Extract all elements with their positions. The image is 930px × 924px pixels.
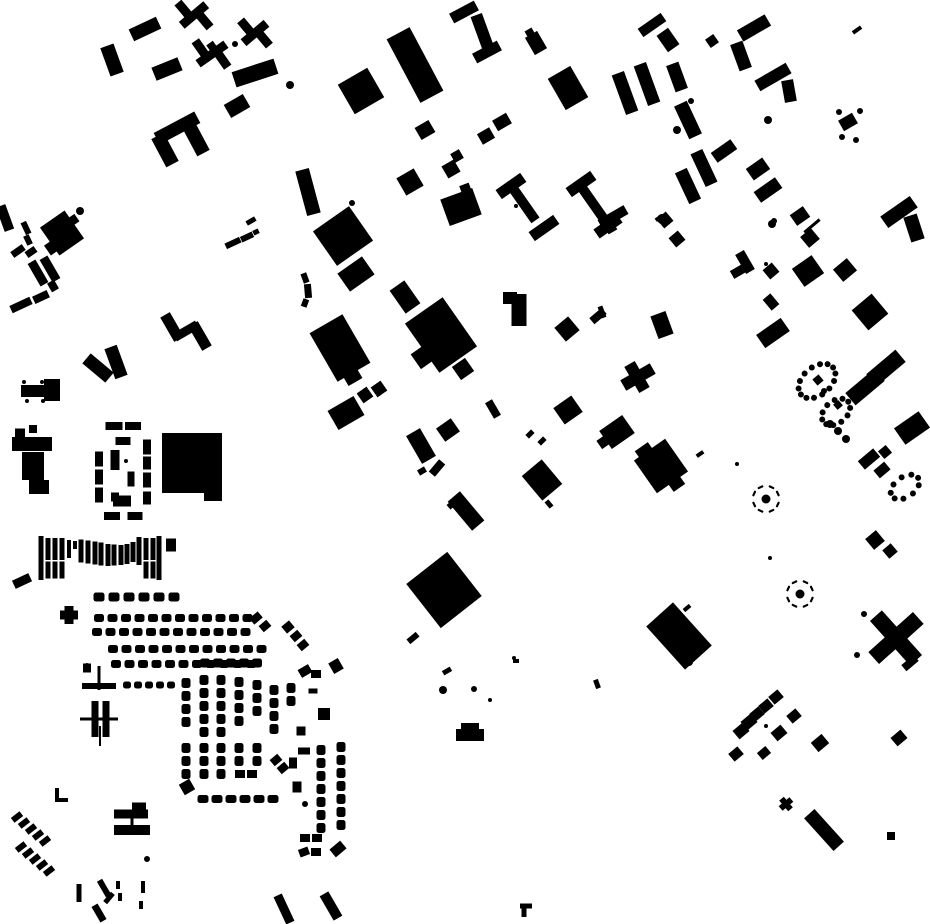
building-footprint	[300, 834, 310, 842]
building-footprint	[47, 280, 59, 293]
building-footprint	[60, 562, 65, 579]
building-footprint	[270, 711, 279, 721]
building-footprint	[160, 628, 170, 636]
building-footprint	[182, 704, 191, 714]
building-footprint	[23, 234, 33, 246]
building-footprint	[106, 544, 111, 566]
building-footprint	[429, 459, 445, 476]
building-footprint	[143, 473, 151, 488]
building-footprint	[22, 452, 44, 480]
building-footprint-dot	[907, 471, 915, 479]
building-footprint	[79, 540, 84, 563]
building-footprint	[11, 811, 23, 823]
building-footprint	[116, 437, 131, 445]
building-footprint	[317, 797, 326, 807]
building-footprint	[46, 538, 51, 560]
building-footprint-dot	[823, 401, 831, 409]
building-footprint	[287, 696, 296, 706]
building-footprint	[156, 682, 164, 689]
building-footprint-dot	[897, 473, 905, 481]
building-footprint	[310, 314, 371, 381]
building-footprint	[235, 770, 245, 778]
building-footprint-dot	[839, 134, 845, 140]
building-footprint	[182, 122, 209, 157]
building-footprint	[65, 606, 74, 624]
building-footprint	[545, 499, 554, 508]
building-footprint	[298, 748, 310, 755]
building-footprint	[786, 585, 791, 591]
building-footprint	[99, 726, 101, 746]
building-footprint	[29, 480, 49, 494]
building-footprint	[104, 512, 120, 520]
building-footprint	[111, 493, 119, 502]
building-footprint	[390, 280, 421, 313]
building-footprint	[436, 418, 460, 441]
building-footprint	[143, 457, 151, 470]
building-footprint-dot	[41, 399, 45, 403]
building-footprint	[139, 901, 143, 909]
building-footprint	[852, 294, 889, 331]
building-footprint	[86, 541, 91, 564]
building-footprint	[175, 614, 185, 622]
building-footprint	[235, 716, 244, 726]
building-footprint-dot	[909, 489, 917, 497]
building-footprint	[328, 658, 344, 674]
building-footprint	[259, 620, 272, 633]
building-footprint	[320, 891, 343, 920]
building-footprint	[182, 678, 191, 688]
building-footprint	[200, 769, 209, 779]
building-footprint	[144, 538, 149, 560]
building-footprint	[151, 133, 178, 168]
building-footprint	[99, 543, 104, 566]
building-footprint	[301, 298, 309, 308]
building-footprint	[29, 425, 37, 433]
map-figure	[0, 0, 930, 924]
building-footprint	[29, 853, 41, 865]
building-footprint	[145, 682, 153, 689]
building-footprint-dot	[514, 204, 518, 208]
building-footprint	[80, 718, 118, 721]
building-footprint	[214, 628, 224, 636]
building-footprint-dot	[843, 411, 851, 419]
radial-marker	[752, 485, 780, 513]
building-footprint	[235, 743, 244, 753]
building-footprint	[317, 810, 326, 820]
building-footprint-dot	[854, 652, 860, 658]
building-footprint	[311, 670, 321, 678]
building-footprint	[217, 756, 226, 766]
building-footprint-dot	[768, 556, 772, 560]
building-footprint	[182, 717, 191, 727]
building-footprint	[212, 795, 223, 803]
building-footprint	[903, 213, 924, 242]
building-footprint	[440, 188, 482, 226]
building-footprint-dot	[688, 98, 694, 104]
radial-marker	[786, 580, 814, 608]
building-footprint	[95, 470, 103, 485]
building-footprint	[318, 708, 330, 720]
building-footprint	[91, 903, 106, 922]
building-footprint	[337, 820, 346, 830]
building-footprint	[141, 881, 145, 893]
building-footprint	[204, 491, 222, 501]
building-footprint	[226, 659, 236, 668]
building-footprint	[298, 847, 310, 858]
building-footprint	[878, 445, 892, 459]
building-footprint	[169, 593, 180, 602]
building-footprint-dot	[834, 427, 842, 435]
building-footprint	[317, 745, 326, 755]
building-footprint	[118, 893, 122, 901]
building-footprint	[165, 660, 175, 668]
building-footprint	[757, 746, 771, 760]
building-footprint	[763, 293, 780, 310]
building-footprint	[811, 734, 829, 752]
building-footprint	[415, 120, 436, 140]
building-footprint	[43, 865, 55, 877]
building-footprint	[768, 485, 774, 490]
building-footprint	[477, 127, 495, 144]
building-footprint	[119, 545, 124, 565]
building-footprint	[328, 396, 365, 430]
building-footprint-dot	[673, 126, 681, 134]
building-footprint	[858, 448, 880, 469]
building-footprint	[281, 620, 294, 633]
building-footprint	[666, 62, 688, 93]
building-footprint	[15, 429, 25, 438]
building-footprint	[254, 795, 265, 803]
building-footprint	[125, 544, 130, 564]
building-footprint	[522, 459, 562, 500]
building-footprint	[133, 628, 143, 636]
building-footprint-dot	[810, 394, 818, 402]
building-footprint	[786, 708, 802, 723]
building-footprint	[36, 859, 48, 871]
building-footprint-dot	[439, 686, 447, 694]
building-footprint	[253, 756, 262, 766]
building-footprint	[241, 628, 251, 636]
building-footprint	[114, 825, 150, 835]
building-footprint	[94, 593, 105, 602]
building-footprint	[24, 246, 37, 258]
building-footprint	[217, 714, 226, 724]
building-footprint	[200, 756, 209, 766]
building-footprint	[252, 228, 260, 235]
building-footprint	[317, 823, 326, 833]
building-footprint	[152, 660, 162, 668]
building-footprint	[337, 742, 346, 752]
building-footprint-dot	[826, 420, 834, 428]
building-footprint-dot	[488, 698, 492, 702]
building-footprint-dot	[349, 200, 355, 206]
building-footprint-map	[0, 0, 930, 924]
building-footprint	[790, 206, 811, 226]
building-footprint	[442, 667, 452, 676]
building-footprint	[804, 809, 844, 851]
building-footprint	[268, 795, 279, 803]
building-footprint	[92, 628, 102, 636]
building-footprint	[12, 573, 32, 589]
building-footprint	[810, 585, 815, 591]
building-footprint	[792, 255, 824, 287]
building-footprint	[192, 38, 211, 60]
building-footprint	[135, 614, 145, 622]
building-footprint	[786, 596, 791, 602]
building-footprint	[791, 604, 797, 609]
building-footprint	[143, 492, 151, 505]
building-footprint-dot	[915, 481, 923, 489]
building-footprint	[812, 374, 823, 385]
building-footprint	[21, 385, 49, 397]
building-footprint	[757, 509, 763, 514]
building-footprint	[577, 184, 607, 221]
building-footprint-dot	[232, 41, 238, 47]
building-footprint	[852, 25, 862, 34]
building-footprint	[134, 682, 142, 689]
building-footprint	[461, 723, 479, 731]
building-footprint	[82, 683, 116, 689]
building-footprint	[151, 57, 182, 80]
building-footprint	[18, 817, 30, 829]
building-footprint	[503, 292, 517, 304]
building-footprint	[838, 113, 858, 131]
building-footprint	[125, 422, 141, 430]
building-footprint	[756, 318, 790, 348]
building-footprint-dot	[816, 360, 824, 368]
building-footprint	[125, 660, 135, 668]
building-footprint	[357, 387, 374, 404]
building-footprint	[108, 614, 118, 622]
building-footprint	[138, 660, 148, 668]
building-footprint-dot	[794, 384, 802, 392]
building-footprint	[167, 682, 175, 689]
building-footprint	[10, 244, 25, 258]
building-footprint	[554, 316, 579, 341]
dotted-building-outline	[883, 466, 928, 508]
building-footprint	[270, 754, 283, 767]
building-footprint	[112, 545, 117, 566]
building-footprint	[757, 485, 763, 490]
building-footprint	[768, 509, 774, 514]
building-footprint	[95, 452, 103, 467]
building-footprint	[270, 698, 279, 708]
building-footprint	[337, 781, 346, 791]
building-footprint-dot	[853, 137, 859, 143]
building-footprint	[737, 14, 771, 41]
building-footprint	[182, 756, 191, 766]
building-footprint	[226, 795, 237, 803]
building-footprint	[0, 204, 14, 232]
building-footprint-dot	[286, 81, 294, 89]
building-footprint	[612, 71, 639, 115]
building-footprint	[67, 540, 71, 558]
building-footprint	[216, 645, 226, 653]
building-footprint	[202, 614, 212, 622]
building-footprint	[123, 682, 131, 689]
building-footprint-dot	[685, 658, 693, 666]
building-footprint	[109, 593, 120, 602]
building-footprint	[337, 794, 346, 804]
building-footprint	[121, 614, 131, 622]
building-footprint	[253, 743, 262, 753]
building-footprint	[189, 614, 199, 622]
building-footprint	[705, 34, 719, 48]
building-footprint	[144, 562, 149, 579]
building-footprint	[77, 884, 82, 902]
building-footprint	[46, 562, 51, 579]
building-footprint	[83, 664, 91, 673]
building-footprint	[217, 727, 226, 737]
building-footprint	[217, 769, 226, 779]
building-footprint	[108, 645, 118, 653]
building-footprint	[776, 501, 781, 507]
building-footprint	[754, 177, 783, 203]
building-footprint	[187, 628, 197, 636]
building-footprint	[270, 685, 279, 695]
building-footprint-dot	[735, 462, 739, 466]
building-footprint-dot	[836, 109, 842, 115]
building-footprint	[894, 411, 930, 445]
building-footprint	[650, 311, 673, 339]
building-footprint	[387, 27, 444, 103]
building-footprint	[317, 758, 326, 768]
building-footprint	[217, 675, 226, 685]
building-footprint	[235, 690, 244, 700]
building-footprint-dot	[889, 480, 897, 488]
building-footprint	[297, 727, 306, 736]
building-footprint	[406, 552, 481, 628]
building-footprint	[100, 44, 123, 77]
building-footprint-dot	[830, 377, 838, 385]
building-footprint-dot	[831, 369, 839, 377]
building-footprint	[240, 795, 251, 803]
building-footprint	[593, 679, 601, 689]
building-footprint	[317, 784, 326, 794]
building-footprint	[317, 771, 326, 781]
building-footprint	[95, 488, 103, 503]
building-footprint	[182, 743, 191, 753]
building-footprint	[508, 185, 539, 224]
building-footprint-dot	[525, 210, 529, 214]
building-footprint	[287, 683, 296, 693]
building-footprint	[157, 536, 162, 580]
building-footprint	[338, 68, 384, 114]
building-footprint-dot	[837, 418, 845, 426]
building-footprint	[56, 798, 68, 802]
building-footprint	[148, 614, 158, 622]
building-footprint	[776, 490, 781, 496]
building-footprint	[131, 818, 134, 826]
building-footprint	[162, 614, 172, 622]
building-footprint	[289, 758, 297, 769]
building-footprint	[32, 290, 50, 304]
building-footprint	[752, 490, 757, 496]
building-footprint	[245, 216, 256, 225]
building-footprint	[337, 256, 374, 291]
building-footprint	[119, 628, 129, 636]
building-footprint	[53, 538, 58, 560]
building-footprint	[728, 746, 744, 761]
building-footprint	[791, 580, 797, 585]
building-footprint	[114, 810, 148, 819]
building-footprint	[128, 472, 135, 487]
building-footprint	[200, 675, 209, 685]
building-footprint	[746, 158, 770, 181]
building-footprint	[200, 727, 209, 737]
building-footprint	[525, 429, 534, 438]
building-footprint	[337, 807, 346, 817]
building-footprint-dot	[764, 724, 768, 728]
building-footprint	[522, 905, 527, 917]
building-footprint	[60, 538, 65, 560]
building-footprint	[200, 701, 209, 711]
building-footprint	[887, 832, 895, 840]
building-footprint	[131, 542, 136, 562]
building-footprint-dot	[76, 207, 84, 215]
building-footprint	[802, 580, 808, 585]
building-footprint-dot	[808, 363, 816, 371]
building-footprint	[253, 693, 262, 703]
building-footprint	[227, 628, 237, 636]
building-footprint	[240, 232, 254, 243]
building-footprint	[232, 59, 279, 88]
building-footprint	[882, 543, 897, 558]
building-footprint	[179, 779, 195, 795]
building-footprint	[634, 62, 661, 106]
building-footprint	[200, 659, 210, 668]
building-footprint	[492, 113, 512, 131]
building-footprint	[669, 231, 686, 248]
building-footprint	[106, 628, 116, 636]
building-footprint	[182, 691, 191, 701]
building-footprint	[129, 17, 162, 41]
building-footprint	[224, 94, 251, 118]
building-footprint	[845, 369, 884, 406]
building-footprint-dot	[302, 801, 308, 807]
building-footprint-dot	[842, 435, 850, 443]
building-footprint	[15, 841, 27, 853]
building-footprint	[151, 538, 156, 560]
building-footprint	[396, 168, 423, 195]
building-footprint	[257, 645, 267, 653]
building-footprint	[371, 381, 388, 398]
building-footprint	[22, 847, 34, 859]
building-footprint	[216, 614, 226, 622]
building-footprint	[253, 680, 262, 690]
building-footprint-dot	[764, 116, 772, 124]
building-footprint-dot	[40, 380, 44, 384]
building-footprint	[235, 703, 244, 713]
building-footprint-dot	[22, 380, 26, 384]
building-footprint-dot	[762, 495, 771, 504]
building-footprint	[781, 79, 797, 103]
building-footprint	[111, 450, 120, 470]
building-footprint	[274, 894, 295, 924]
building-footprint	[657, 212, 674, 229]
building-footprint-dot	[25, 399, 29, 403]
building-footprint	[406, 428, 436, 464]
building-footprint	[239, 659, 249, 668]
building-footprint	[116, 881, 120, 889]
building-footprint	[800, 228, 820, 248]
building-footprint	[675, 168, 701, 204]
building-footprint	[406, 632, 419, 644]
building-footprint	[53, 562, 58, 579]
building-footprint-dot	[768, 220, 776, 228]
building-footprint	[295, 168, 320, 216]
building-footprint	[213, 659, 223, 668]
